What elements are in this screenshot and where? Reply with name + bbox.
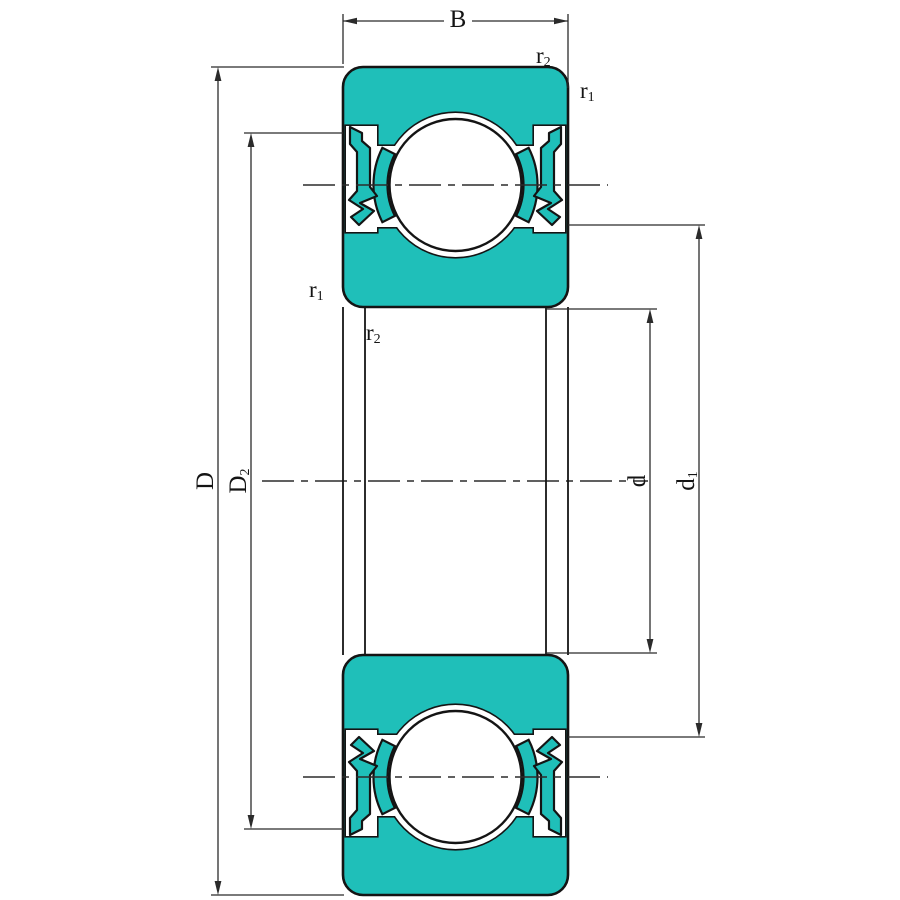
bearing-section-bottom	[303, 655, 608, 895]
bearing-diagram: B D D2 d d1 r2 r1 r1 r2	[0, 0, 900, 900]
label-r1-top: r1	[580, 78, 595, 105]
bearing-section-top	[303, 67, 608, 307]
label-r2-mid: r2	[366, 320, 381, 347]
label-d1: d1	[673, 471, 701, 491]
label-D: D	[192, 472, 219, 490]
label-d: d	[624, 474, 651, 487]
label-B: B	[450, 6, 467, 33]
label-D2: D2	[225, 468, 253, 493]
label-r2-top: r2	[536, 43, 551, 70]
diagram-canvas: B D D2 d d1 r2 r1 r1 r2	[0, 0, 900, 900]
label-r1-mid: r1	[309, 277, 324, 304]
